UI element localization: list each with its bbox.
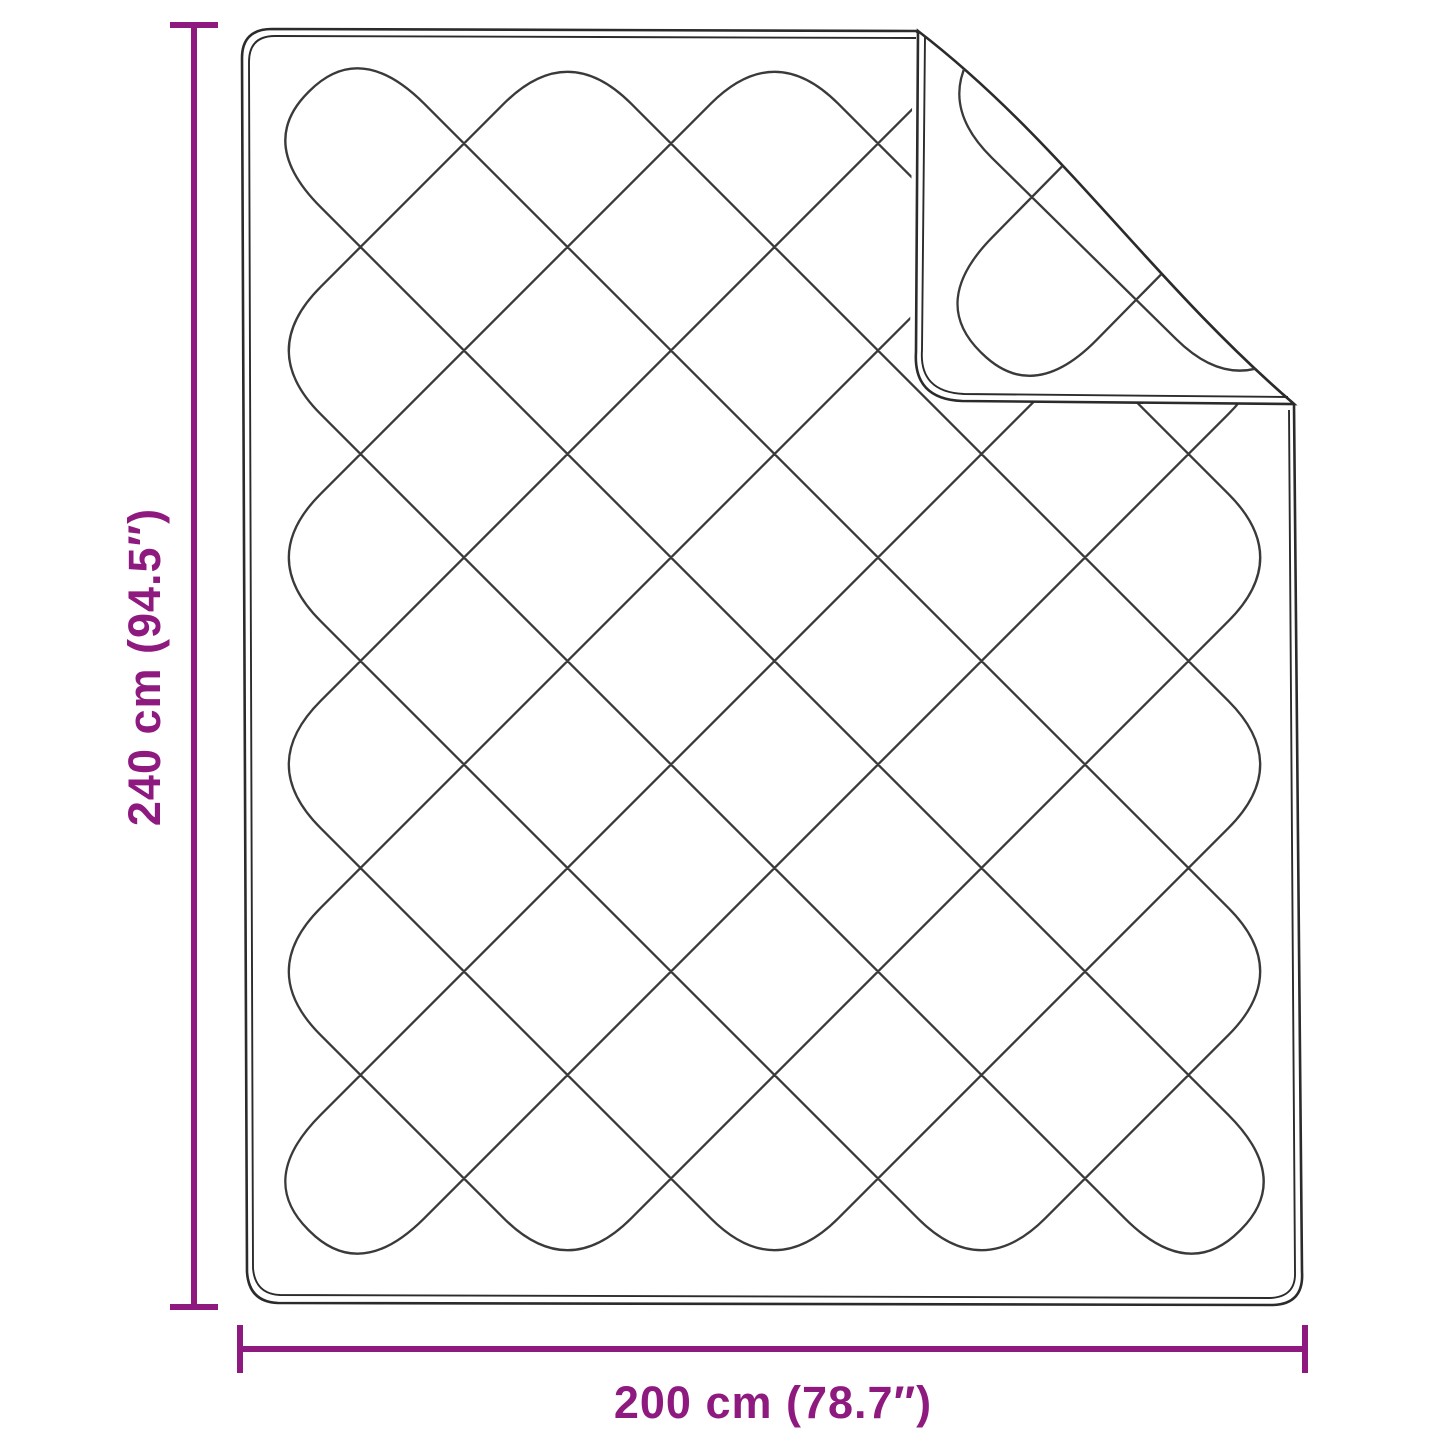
blanket-outline-outer: [242, 29, 1302, 1305]
dimension-diagram: 240 cm (94.5″) 200 cm (78.7″): [0, 0, 1445, 1445]
width-dimension-label: 200 cm (78.7″): [614, 1377, 932, 1428]
height-dimension-cap-top: [170, 22, 218, 28]
width-dimension-cap-left: [237, 1325, 243, 1373]
height-dimension: 240 cm (94.5″): [119, 22, 218, 1310]
diagram-canvas: 240 cm (94.5″) 200 cm (78.7″): [0, 0, 1445, 1445]
width-dimension: 200 cm (78.7″): [237, 1325, 1308, 1428]
width-dimension-line: [240, 1346, 1305, 1352]
height-dimension-cap-bottom: [170, 1304, 218, 1310]
height-dimension-line: [191, 25, 197, 1308]
folded-corner: [916, 0, 1445, 404]
width-dimension-cap-right: [1302, 1325, 1308, 1373]
height-dimension-label: 240 cm (94.5″): [119, 508, 170, 826]
folded-corner-face: [916, 31, 1294, 404]
